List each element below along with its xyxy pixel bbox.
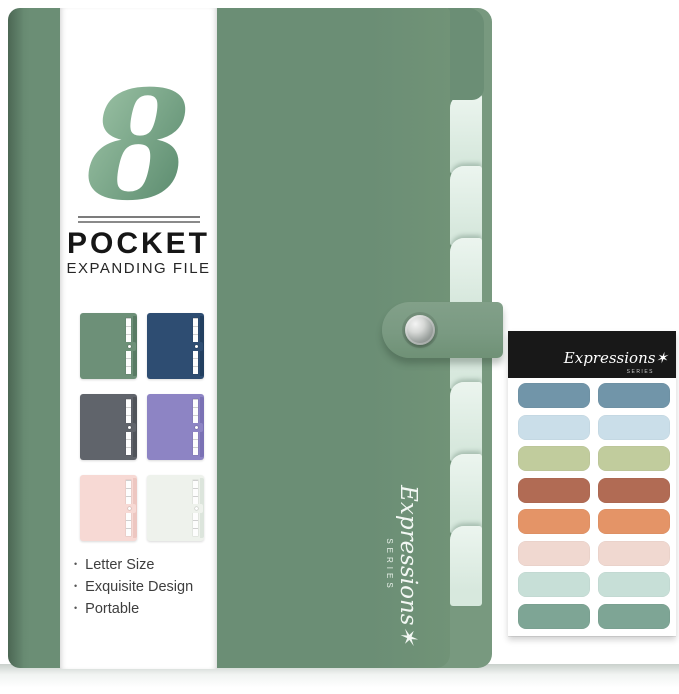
swatch-snap-dot — [128, 507, 131, 510]
swatch-strap — [123, 342, 136, 351]
feature-item: Letter Size — [74, 557, 217, 572]
sticker-powder-blue — [518, 415, 590, 440]
swatch-strap — [190, 504, 203, 513]
sticker-steel-blue — [598, 383, 670, 408]
sticker-pale-mint — [518, 572, 590, 597]
brand-script: Expressions✶ — [396, 470, 420, 660]
folder-index-tabs — [450, 94, 482, 656]
feature-item: Portable — [74, 601, 217, 616]
swatch-strap — [123, 504, 136, 513]
sticker-steel-blue — [518, 383, 590, 408]
sticker-grid — [508, 378, 676, 629]
product-image: 8 POCKET EXPANDING FILE Letter SizeExqui… — [0, 0, 679, 694]
label-sticker-sheet: Expressions✶ SERIES — [508, 331, 676, 636]
swatch-snap-dot — [195, 426, 198, 429]
sticker-terracotta — [598, 478, 670, 503]
product-title: POCKET — [60, 229, 217, 259]
sticker-blush — [518, 541, 590, 566]
sticker-powder-blue — [598, 415, 670, 440]
pocket-count-logo: 8 — [60, 60, 217, 212]
expanding-file-folder: 8 POCKET EXPANDING FILE Letter SizeExqui… — [8, 8, 492, 668]
star-icon: ✶ — [655, 349, 668, 367]
product-subtitle: EXPANDING FILE — [60, 261, 217, 277]
feature-item: Exquisite Design — [74, 579, 217, 594]
swatch-strap — [190, 342, 203, 351]
star-icon: ✶ — [395, 626, 421, 645]
index-tab — [450, 166, 482, 246]
swatch-sage-green — [80, 313, 137, 379]
sticker-salmon — [598, 509, 670, 534]
index-tab — [450, 94, 482, 174]
swatch-snap-dot — [128, 426, 131, 429]
swatch-navy-blue — [147, 313, 204, 379]
sticker-sheet-header: Expressions✶ SERIES — [508, 331, 676, 378]
sticker-sea-green — [518, 604, 590, 629]
swatch-snap-dot — [195, 345, 198, 348]
index-tab — [450, 454, 482, 534]
packaging-sleeve: 8 POCKET EXPANDING FILE Letter SizeExqui… — [60, 8, 217, 669]
brand-series: SERIES — [385, 470, 394, 660]
sticker-blush — [598, 541, 670, 566]
swatch-lavender-purple — [147, 394, 204, 460]
folder-top-tab — [448, 8, 484, 100]
swatch-snap-dot — [195, 507, 198, 510]
sticker-sage-olive — [598, 446, 670, 471]
swatch-snap-dot — [128, 345, 131, 348]
brand-mark: Expressions✶ SERIES — [385, 470, 420, 660]
swatch-strap — [123, 423, 136, 432]
index-tab — [450, 382, 482, 462]
sheet-brand-series: SERIES — [627, 369, 654, 375]
sheet-brand-script: Expressions✶ — [564, 351, 668, 366]
folder-spine — [8, 8, 24, 668]
sticker-terracotta — [518, 478, 590, 503]
sticker-sea-green — [598, 604, 670, 629]
swatch-ivory-mint — [147, 475, 204, 541]
feature-list: Letter SizeExquisite DesignPortable — [74, 557, 217, 616]
sticker-salmon — [518, 509, 590, 534]
sticker-pale-mint — [598, 572, 670, 597]
pocket-count: 8 — [85, 60, 190, 212]
swatch-blush-pink — [80, 475, 137, 541]
color-swatch-grid — [80, 313, 206, 541]
swatch-slate-gray — [80, 394, 137, 460]
title-divider — [78, 216, 200, 223]
snap-button-icon — [405, 315, 435, 345]
closure-strap — [382, 302, 503, 358]
sticker-sage-olive — [518, 446, 590, 471]
index-tab — [450, 526, 482, 606]
swatch-strap — [190, 423, 203, 432]
